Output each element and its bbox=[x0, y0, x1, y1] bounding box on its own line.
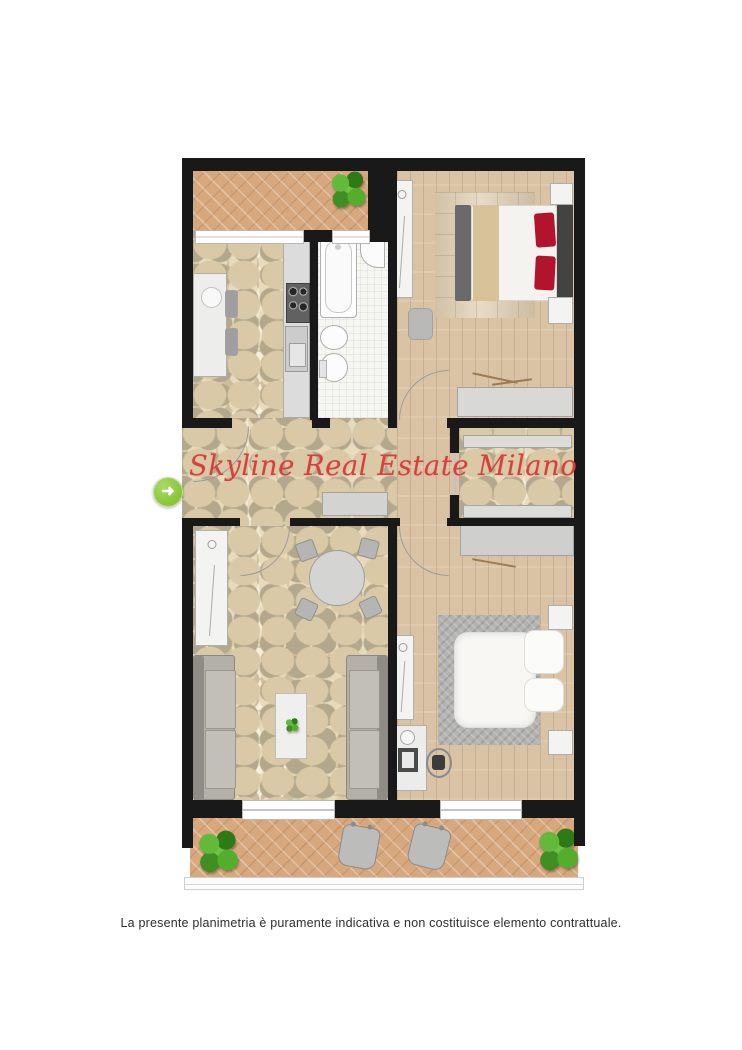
wardrobe bbox=[460, 522, 574, 556]
closet-wardrobe bbox=[463, 435, 572, 448]
wall-segment bbox=[290, 518, 400, 526]
wall-segment bbox=[450, 495, 459, 518]
pillow bbox=[524, 678, 564, 712]
sofa bbox=[346, 655, 388, 800]
wall-segment bbox=[447, 418, 585, 428]
sink-basin bbox=[289, 343, 306, 367]
room-terrace-top bbox=[193, 171, 368, 230]
living-shelf-unit bbox=[195, 530, 228, 646]
window bbox=[440, 800, 522, 820]
sofa-cushion bbox=[349, 670, 380, 729]
dresser bbox=[457, 387, 573, 417]
wall-segment bbox=[333, 800, 440, 818]
plant-icon bbox=[285, 718, 299, 733]
window bbox=[332, 230, 370, 244]
wall-segment bbox=[302, 230, 332, 242]
nightstand bbox=[548, 297, 573, 324]
kitchen-chair bbox=[225, 328, 238, 356]
nightstand bbox=[548, 605, 573, 630]
sofa-cushion bbox=[349, 730, 380, 789]
kitchen-table bbox=[193, 273, 227, 377]
round-dining-table bbox=[309, 550, 365, 606]
terrace-railing bbox=[184, 877, 584, 890]
kitchen-sink bbox=[285, 326, 308, 372]
wall-segment bbox=[388, 418, 397, 428]
washbasin bbox=[320, 325, 348, 350]
closet-wardrobe bbox=[463, 505, 572, 518]
double-bed bbox=[452, 203, 573, 303]
stove bbox=[286, 283, 310, 323]
wall-segment bbox=[388, 171, 397, 420]
bed-runner bbox=[473, 205, 499, 301]
wall-segment bbox=[447, 518, 585, 526]
sofa-cushion bbox=[205, 730, 236, 789]
wall-segment bbox=[368, 158, 388, 242]
nightstand bbox=[548, 730, 573, 755]
sofa bbox=[193, 655, 235, 800]
wall-segment bbox=[310, 242, 318, 420]
room-bathroom bbox=[318, 230, 388, 418]
watermark-text: Skyline Real Estate Milano bbox=[189, 449, 577, 482]
red-pillow bbox=[534, 255, 556, 290]
dining-chair bbox=[357, 537, 380, 560]
floor-plan bbox=[182, 158, 585, 892]
wall-segment bbox=[574, 158, 585, 820]
sofa-backrest bbox=[194, 656, 204, 801]
wall-segment bbox=[182, 158, 193, 420]
wall-segment bbox=[182, 800, 242, 818]
bathtub bbox=[320, 235, 357, 318]
window bbox=[242, 800, 335, 820]
room-terrace-bottom bbox=[190, 818, 578, 878]
wall-segment bbox=[182, 518, 193, 800]
bed-headboard bbox=[557, 203, 573, 303]
office-chair-seat bbox=[432, 755, 445, 770]
monitor-screen bbox=[402, 752, 414, 768]
wall-segment bbox=[388, 526, 397, 800]
window bbox=[195, 230, 304, 244]
wall-segment bbox=[182, 418, 232, 428]
arrow-right-icon: ➜ bbox=[161, 483, 174, 500]
bed-footboard bbox=[455, 205, 471, 301]
gallery-next-button[interactable]: ➜ bbox=[153, 477, 183, 507]
bathtub-drain bbox=[335, 244, 341, 250]
hallway-console bbox=[322, 492, 388, 516]
toilet bbox=[320, 353, 348, 382]
wall-segment bbox=[312, 418, 330, 428]
terrace-chair bbox=[405, 822, 452, 872]
desk-monitor bbox=[398, 748, 418, 772]
coffee-table bbox=[275, 693, 307, 759]
wall-segment bbox=[182, 518, 240, 526]
terrace-chair bbox=[337, 823, 382, 871]
red-pillow bbox=[534, 212, 556, 247]
kitchen-chair bbox=[225, 290, 238, 318]
nightstand bbox=[550, 183, 573, 205]
sofa-cushion bbox=[205, 670, 236, 729]
office-chair bbox=[426, 748, 452, 778]
pouf bbox=[408, 308, 433, 340]
disclaimer-caption: La presente planimetria è puramente indi… bbox=[0, 916, 742, 930]
room-kitchen bbox=[193, 230, 310, 418]
plant-icon bbox=[329, 171, 367, 211]
dining-chair bbox=[294, 597, 319, 622]
toilet-tank bbox=[319, 360, 327, 378]
double-bed bbox=[452, 628, 567, 732]
wall-segment bbox=[574, 818, 585, 846]
room-living bbox=[193, 526, 388, 800]
desk-clock bbox=[400, 730, 415, 745]
pillow bbox=[524, 630, 564, 674]
bathtub-basin bbox=[325, 240, 352, 313]
decor-sticks bbox=[472, 558, 516, 568]
dining-chair bbox=[358, 595, 383, 620]
wall-segment bbox=[520, 800, 585, 818]
plant-icon bbox=[196, 830, 240, 876]
real-estate-floorplan-page: Skyline Real Estate Milano ➜ La presente… bbox=[0, 0, 742, 1050]
table-plate bbox=[201, 287, 222, 308]
